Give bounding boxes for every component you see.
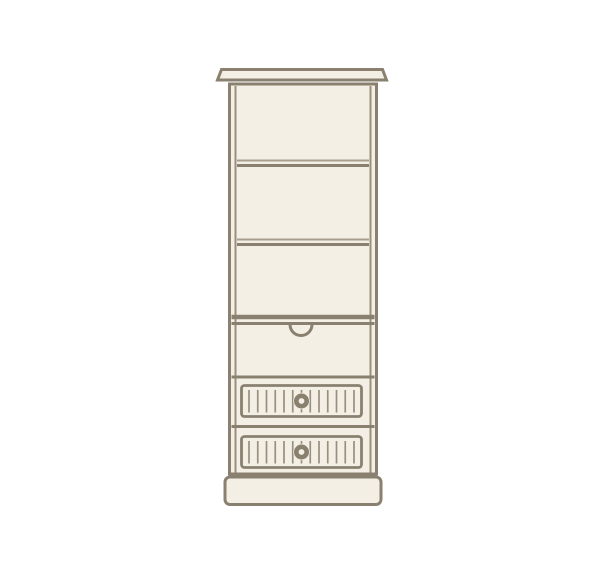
drawer-upper-knob bbox=[296, 396, 306, 406]
solid-panels bbox=[218, 70, 387, 505]
cornice-top bbox=[218, 70, 387, 81]
furniture-illustration-canvas bbox=[0, 0, 600, 578]
plinth-base bbox=[225, 477, 381, 505]
bookcase bbox=[218, 70, 387, 505]
bookcase-line-drawing bbox=[0, 0, 600, 578]
drawer-lower-knob bbox=[296, 447, 306, 457]
